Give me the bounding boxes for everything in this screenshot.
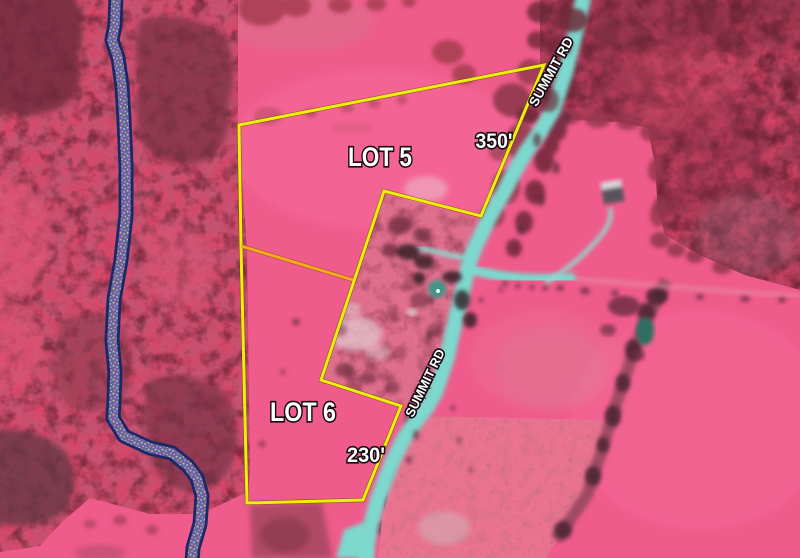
svg-text:350': 350' xyxy=(476,129,513,153)
svg-text:LOT 6: LOT 6 xyxy=(270,397,336,427)
svg-text:230': 230' xyxy=(347,443,385,467)
svg-text:LOT 5: LOT 5 xyxy=(348,142,412,172)
